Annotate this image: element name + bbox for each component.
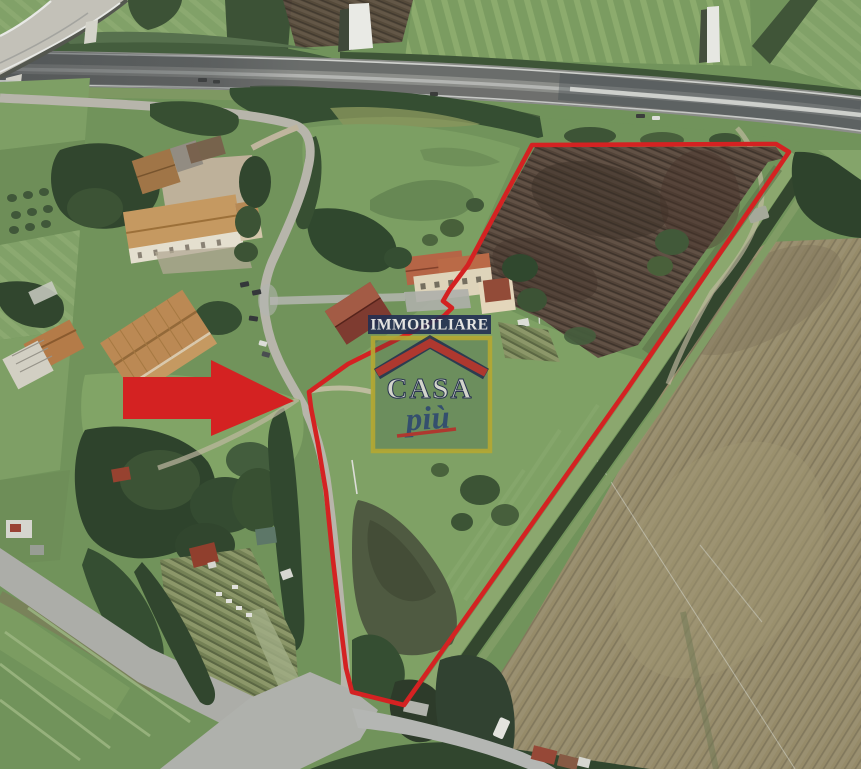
svg-text:IMMOBILIARE: IMMOBILIARE xyxy=(370,317,488,334)
